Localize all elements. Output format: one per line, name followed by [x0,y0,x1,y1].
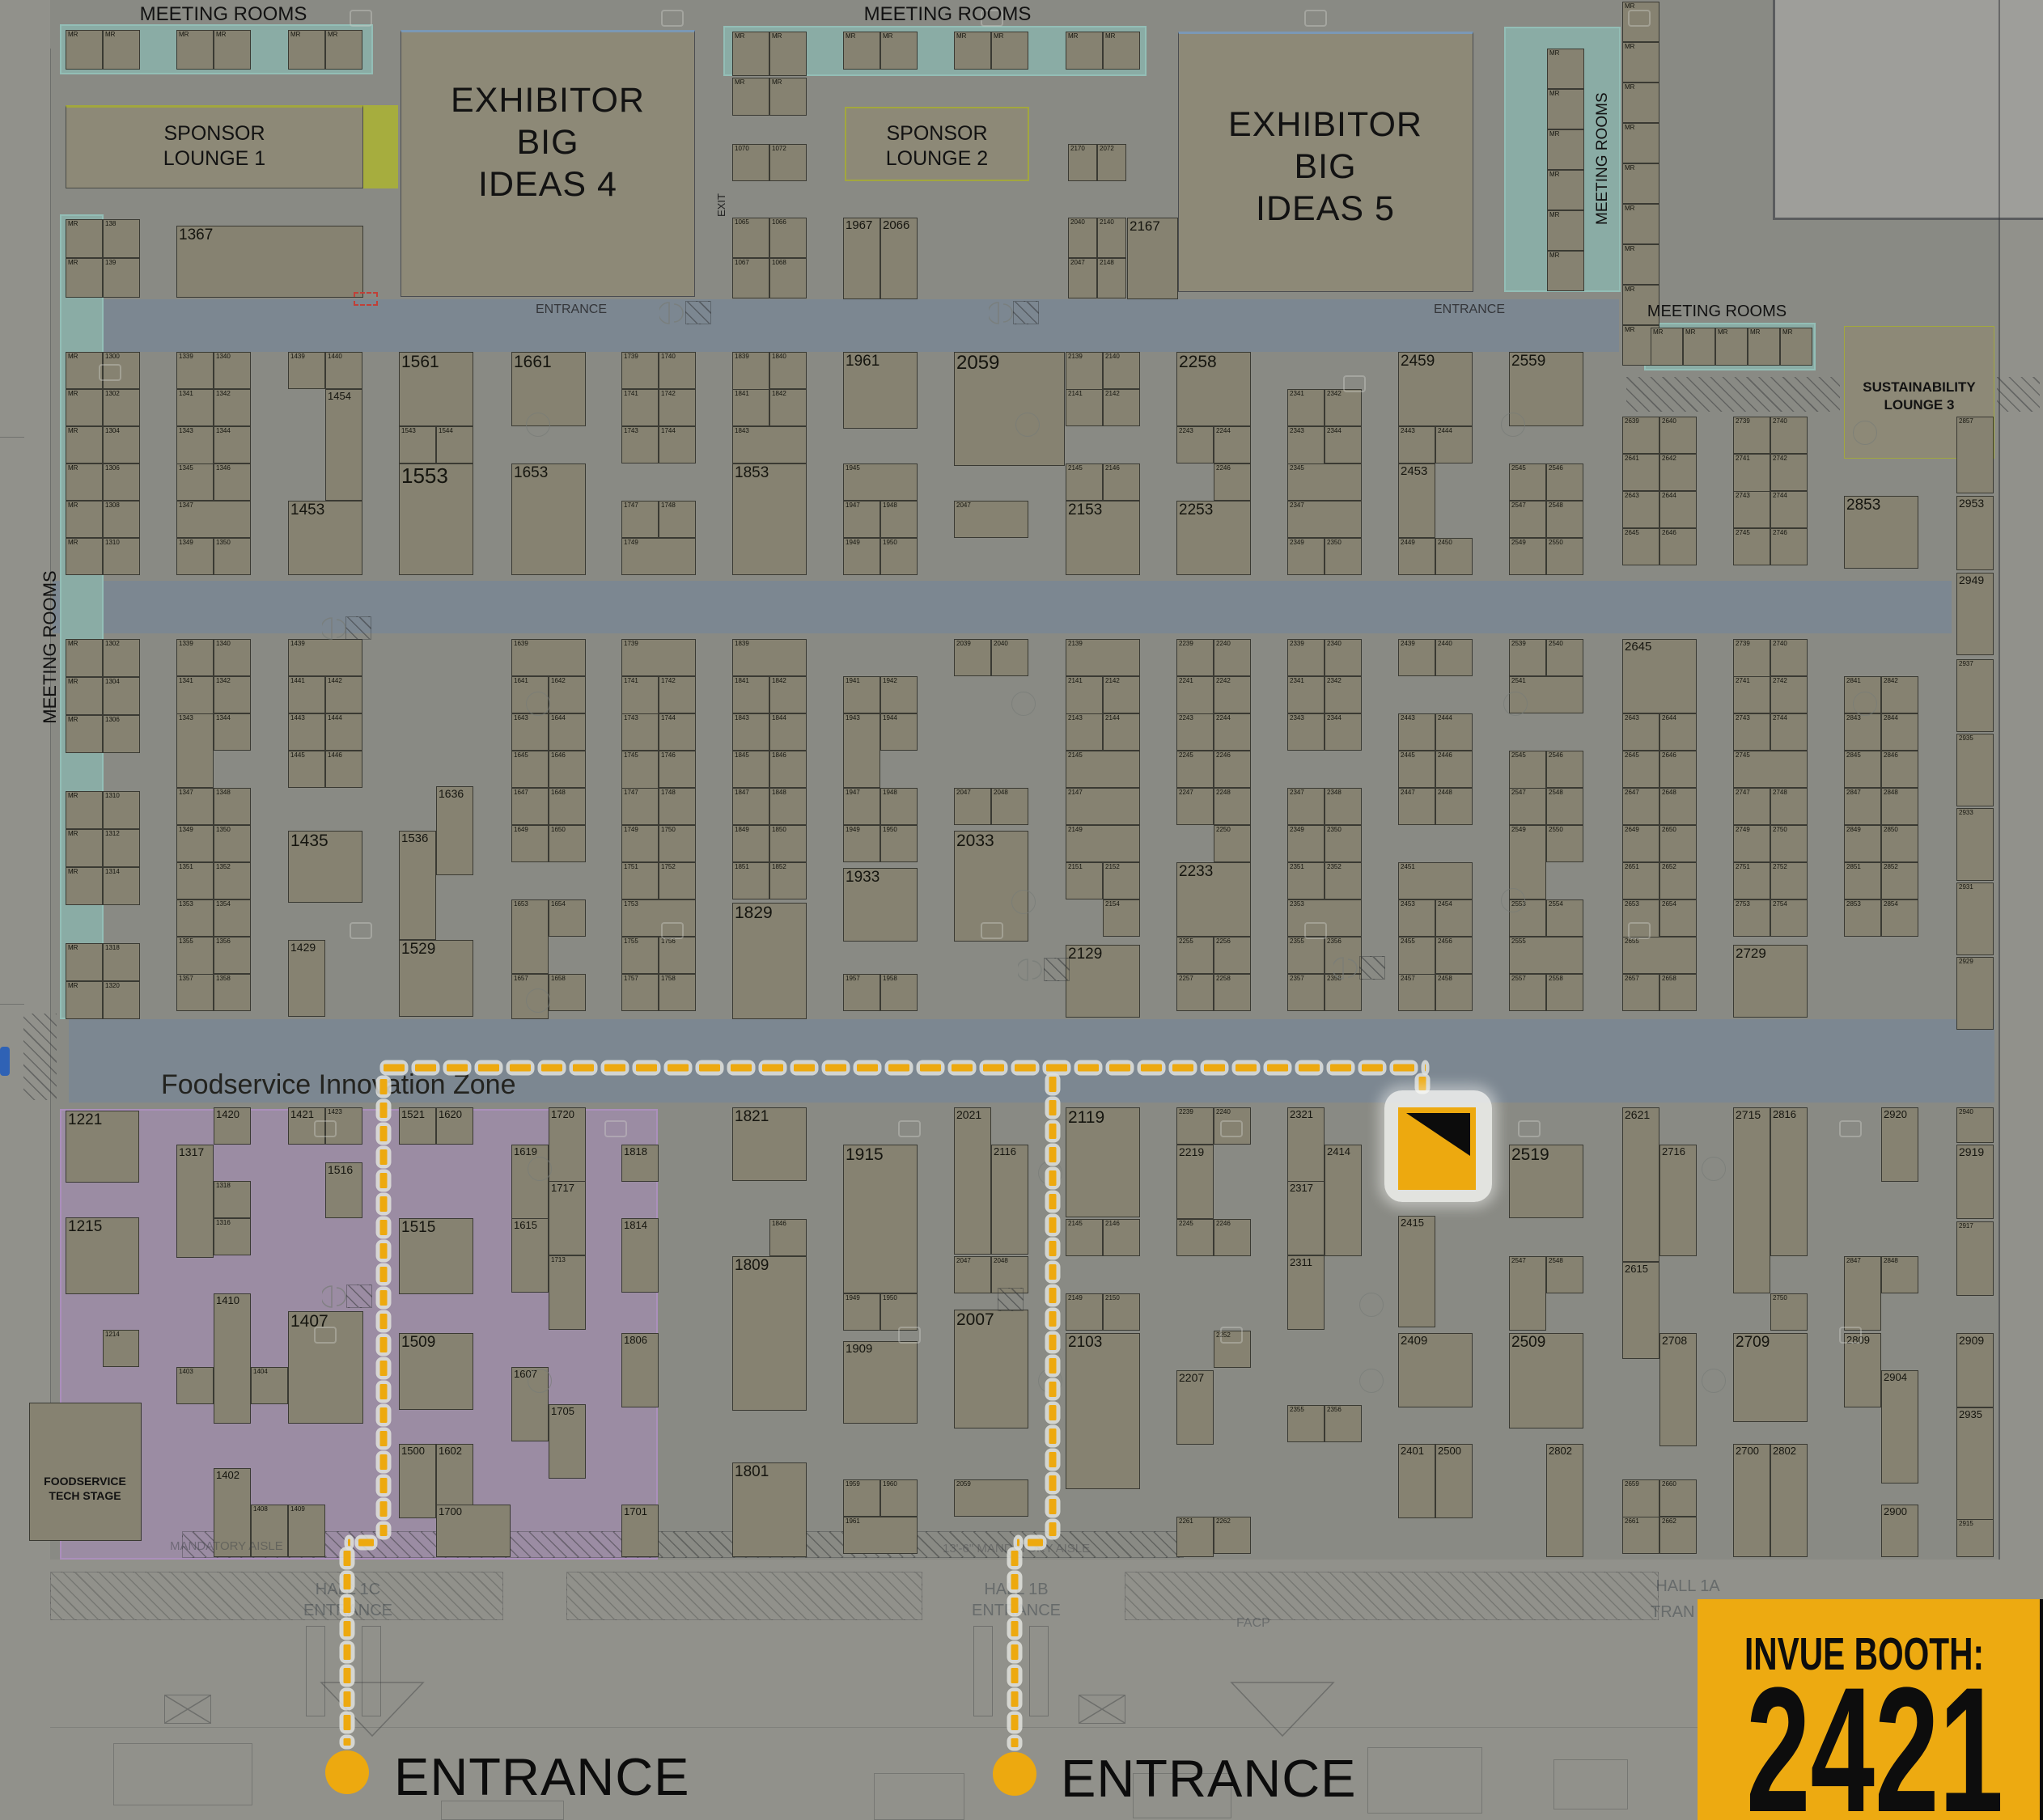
svg-text:2421: 2421 [1746,1650,2003,1820]
